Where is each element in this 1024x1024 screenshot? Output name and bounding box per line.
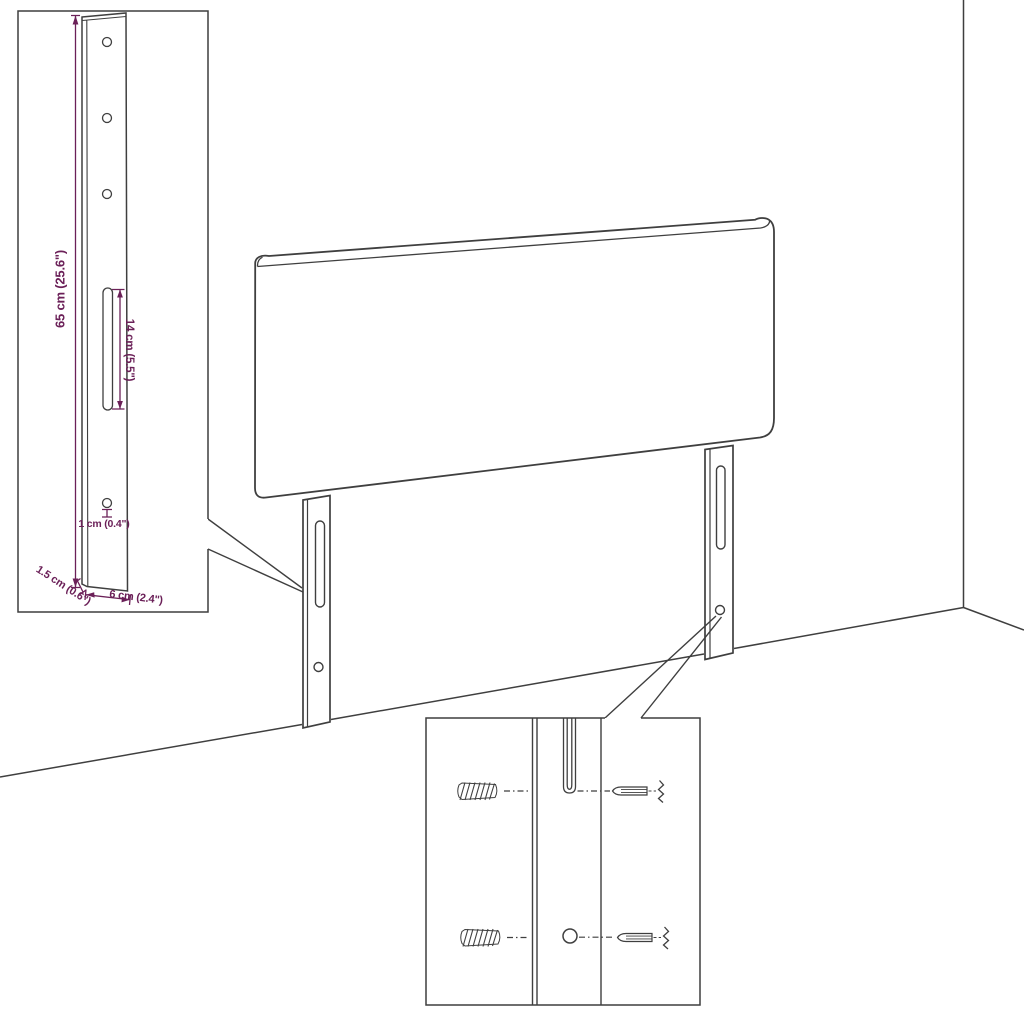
bracket-slot [103, 288, 113, 410]
headboard-leg-left [303, 496, 330, 729]
bracket-small-hole [103, 499, 112, 508]
headboard-assembly-diagram: 65 cm (25.6") 14 cm (5.5") 1 cm (0.4") 1… [0, 0, 1024, 1024]
bracket-hole-top [103, 38, 112, 47]
right-leg-slot [717, 466, 726, 549]
left-leg-slot [316, 521, 325, 607]
left-leg-hole [314, 663, 323, 672]
profile-hole [563, 929, 577, 943]
bracket-inset-callout [208, 519, 303, 592]
diagram-canvas [0, 0, 1024, 1024]
floor-line-right [964, 608, 1024, 631]
dimension-label-slot-length: 14 cm (5.5") [122, 319, 134, 382]
right-leg-hole [716, 606, 725, 615]
hardware-inset-callout [605, 616, 722, 718]
hardware-detail-inset [426, 718, 700, 1005]
dimension-label-hole: 1 cm (0.4") [78, 519, 129, 530]
headboard-leg-right [705, 446, 733, 660]
bracket-hole-bottom [103, 190, 112, 199]
bracket-hole-middle [103, 114, 112, 123]
headboard-panel [255, 218, 774, 498]
mounting-bracket [82, 13, 128, 591]
dimension-label-height: 65 cm (25.6") [54, 250, 67, 328]
